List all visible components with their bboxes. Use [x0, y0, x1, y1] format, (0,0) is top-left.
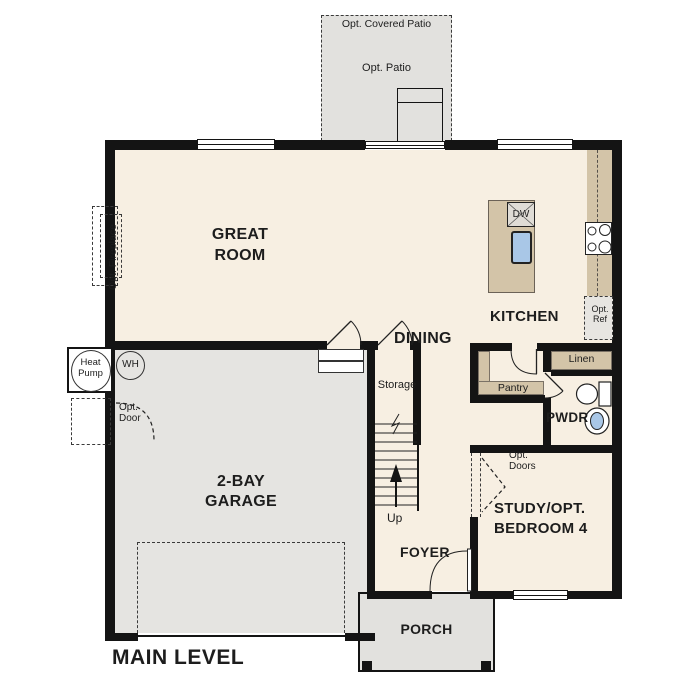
- window: [497, 139, 573, 150]
- garage-label: 2-BAY GARAGE: [186, 472, 296, 512]
- stair-rail: [417, 445, 419, 511]
- kitchen-label: KITCHEN: [490, 309, 559, 326]
- pantry-label: Pantry: [482, 383, 544, 395]
- wall: [568, 591, 622, 599]
- wall: [115, 341, 327, 350]
- opt-patio-label: Opt. Patio: [321, 62, 452, 74]
- dining-label: DINING: [394, 330, 452, 348]
- wall: [105, 633, 138, 641]
- kitchen-sink: [511, 231, 532, 264]
- powder-label: PWDR: [546, 410, 588, 425]
- window: [197, 139, 275, 150]
- garage-door-line: [138, 635, 345, 637]
- wall: [470, 591, 513, 599]
- wall: [470, 395, 545, 403]
- garage-parking-outline: [137, 542, 345, 633]
- plan-title: MAIN LEVEL: [112, 646, 244, 670]
- floor-plan: Opt. Covered Patio Opt. Patio Opt. Ref D…: [0, 0, 687, 687]
- porch-post: [481, 661, 491, 671]
- study-label: STUDY/OPT. BEDROOM 4: [494, 499, 606, 538]
- storage-label: Storage: [374, 379, 420, 391]
- wall: [413, 341, 421, 445]
- porch-label: PORCH: [358, 622, 495, 638]
- wall: [470, 445, 622, 453]
- wall: [470, 343, 478, 403]
- dishwasher-label: DW: [507, 209, 535, 220]
- wall: [551, 370, 612, 376]
- window-mullion: [498, 144, 572, 145]
- up-label: Up: [387, 512, 402, 525]
- window-mullion: [366, 145, 444, 146]
- porch-post: [362, 661, 372, 671]
- heat-pump-label: Heat Pump: [74, 358, 107, 379]
- cooktop: [585, 222, 612, 255]
- linen-label: Linen: [551, 354, 612, 366]
- sliding-door-line: [398, 102, 442, 103]
- opt-door-pad: [71, 398, 111, 445]
- opt-door-label: Opt. Door: [119, 402, 149, 424]
- wall: [612, 140, 622, 599]
- garage-step: [318, 349, 364, 361]
- opt-fireplace-label: Opt. Fireplace: [108, 205, 122, 290]
- wall: [470, 517, 478, 591]
- window-mullion: [514, 595, 567, 596]
- sliding-door: [397, 88, 443, 142]
- opt-doors-opening: [471, 453, 481, 517]
- wall: [367, 591, 432, 599]
- opt-ref-label: Opt. Ref: [588, 304, 612, 324]
- window-mullion: [198, 144, 274, 145]
- great-room-label: GREAT ROOM: [190, 225, 290, 267]
- window: [513, 590, 568, 600]
- foyer-label: FOYER: [400, 545, 450, 561]
- sliding-door-threshold: [365, 141, 445, 149]
- opt-covered-patio-label: Opt. Covered Patio: [321, 19, 452, 31]
- garage-step: [318, 361, 364, 373]
- wall: [543, 343, 551, 372]
- opt-doors-label: Opt. Doors: [509, 450, 545, 472]
- water-heater-label: WH: [116, 359, 145, 370]
